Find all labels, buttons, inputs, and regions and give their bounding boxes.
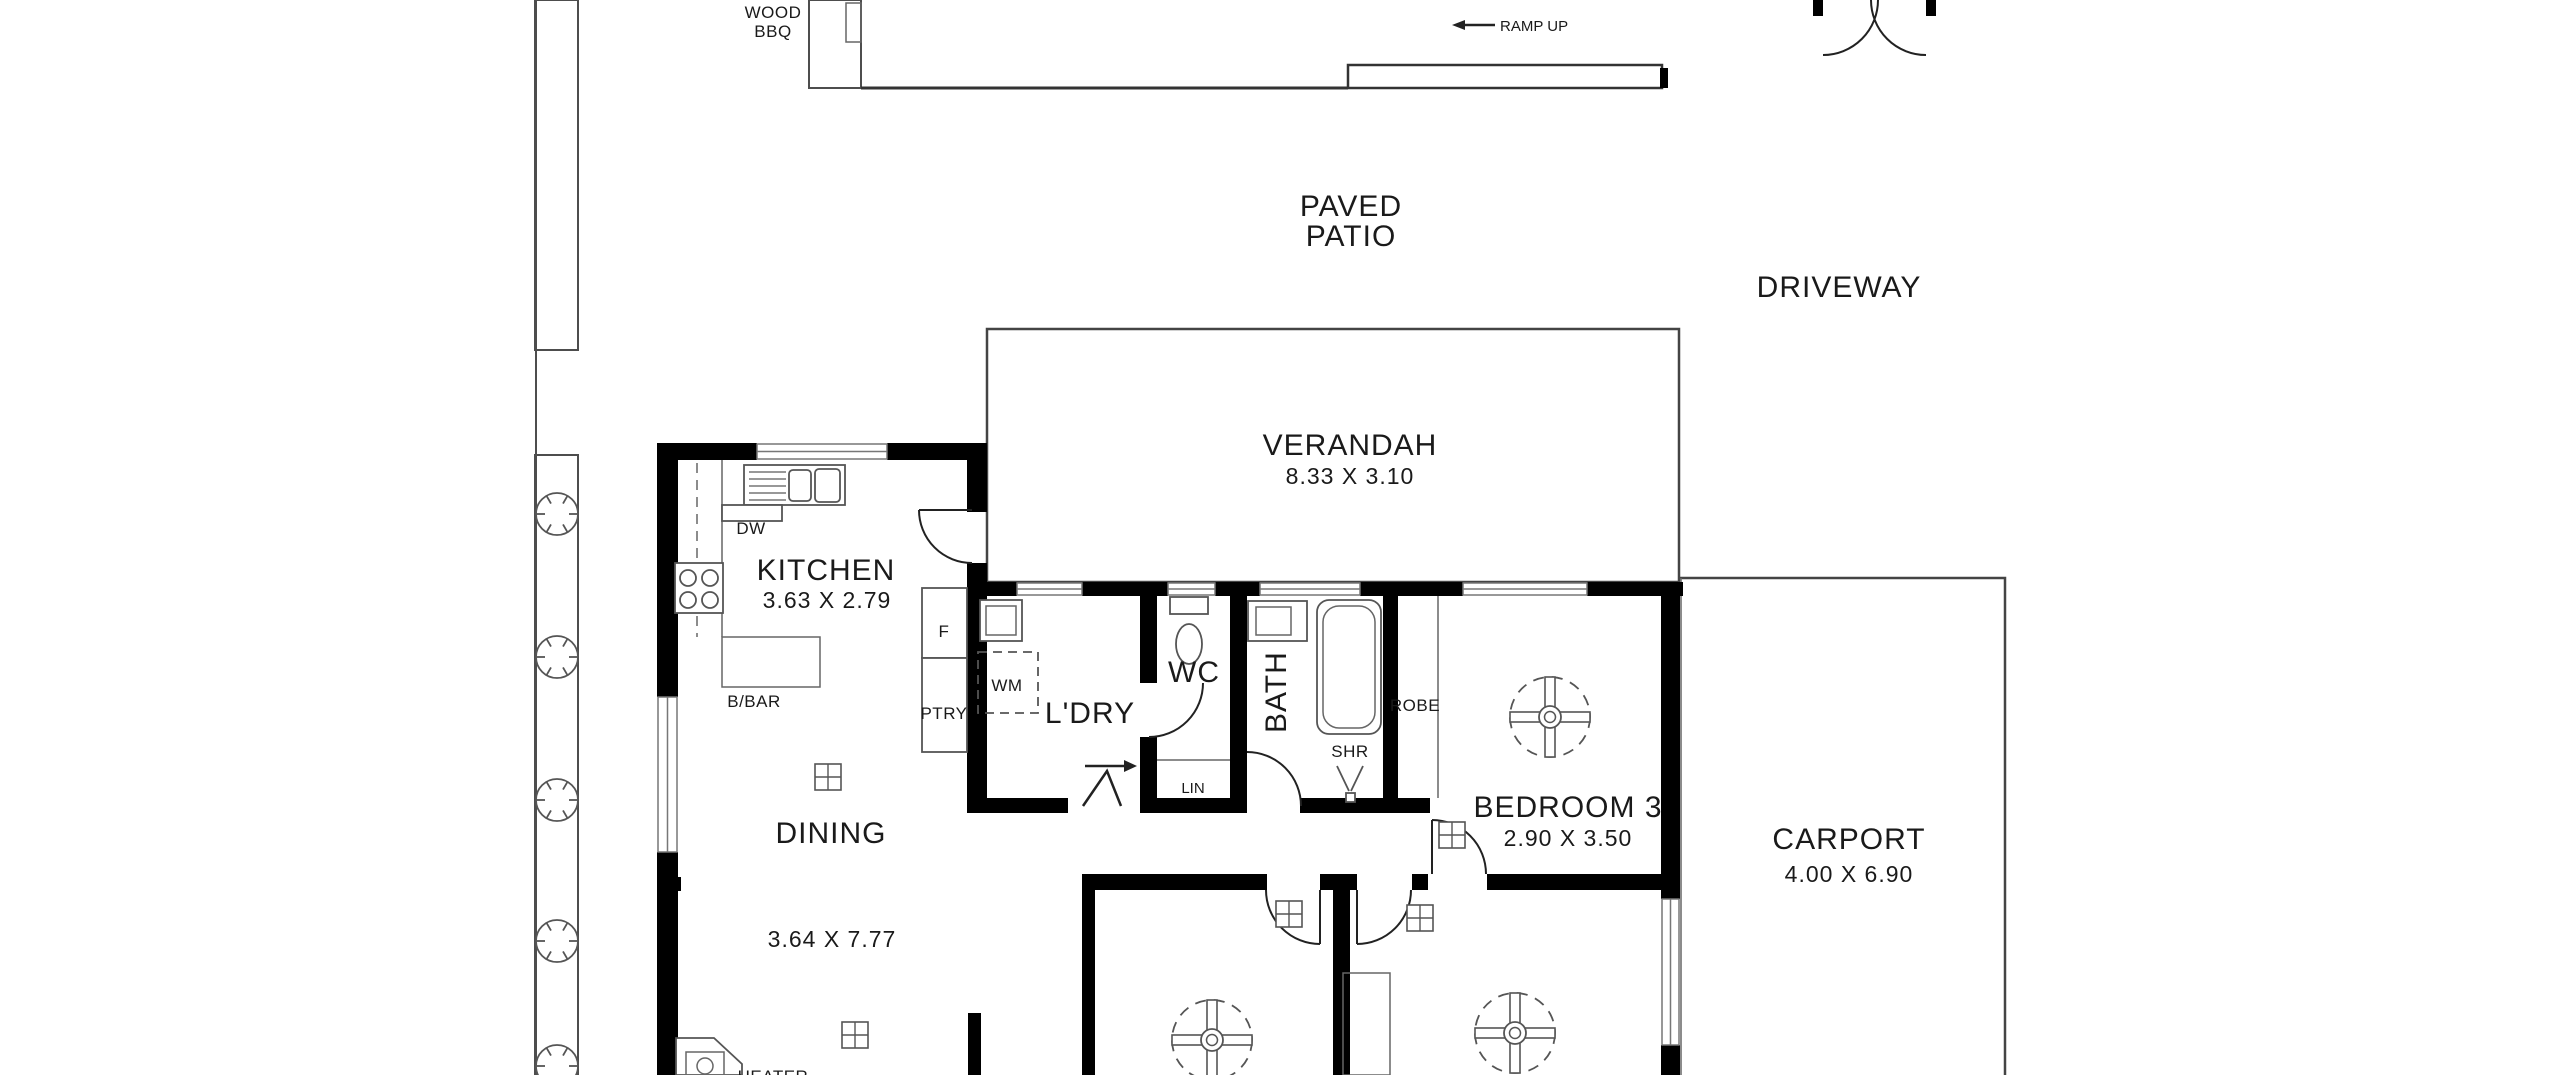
ceiling-fan-icon <box>1172 1000 1252 1075</box>
label-ramp-up: RAMP UP <box>1500 18 1568 35</box>
dims-carport: 4.00 X 6.90 <box>1785 861 1914 887</box>
label-washing-machine: WM <box>991 676 1022 695</box>
walls <box>657 443 1683 1075</box>
ramp-arrow-head-icon <box>1452 20 1465 30</box>
robe-bed2-box <box>1343 973 1390 1075</box>
label-dishwasher: DW <box>736 519 765 538</box>
label-verandah: VERANDAH <box>1263 429 1438 462</box>
dims-kitchen: 3.63 X 2.79 <box>763 587 892 613</box>
label-wc: WC <box>1168 656 1220 689</box>
shrub-icon <box>536 636 578 678</box>
window-wc <box>1168 583 1215 595</box>
ramp-post <box>1660 68 1668 88</box>
label-breakfast-bar: B/BAR <box>727 692 781 711</box>
vent-icon <box>842 1022 868 1048</box>
door-bedroom-right <box>1357 890 1411 944</box>
label-dining: DINING <box>776 817 887 850</box>
label-pantry: PTRY <box>920 704 967 723</box>
shrub-icon <box>536 493 578 535</box>
gate-swing-arc <box>1823 0 1878 55</box>
label-laundry: L'DRY <box>1045 697 1135 730</box>
paved-patio-area <box>809 0 1936 88</box>
site-boundary <box>535 0 578 1075</box>
window-dining-west <box>658 697 677 852</box>
shrub-icon <box>536 779 578 821</box>
floorplan-drawing: WOOD BBQ RAMP UP PAVED PATIO DRIVEWAY VE… <box>0 0 2560 1075</box>
label-heater: HEATER <box>738 1067 809 1075</box>
door-bath <box>1247 752 1301 806</box>
window-bath <box>1260 583 1360 595</box>
kitchen-sink <box>744 465 845 505</box>
label-patio: PATIO <box>1306 220 1397 253</box>
shrub-icon <box>536 1045 578 1075</box>
garden-bed-lower <box>535 455 578 1075</box>
label-paved: PAVED <box>1300 190 1402 223</box>
vent-icon <box>1276 901 1302 927</box>
label-carport: CARPORT <box>1772 823 1925 856</box>
shrub-icon <box>536 920 578 962</box>
vent-icon <box>1407 905 1433 931</box>
window-kitchen <box>757 444 887 459</box>
gate-post <box>1813 0 1823 16</box>
labels: WOOD BBQ RAMP UP PAVED PATIO DRIVEWAY VE… <box>727 3 1925 1075</box>
dims-bedroom3: 2.90 X 3.50 <box>1504 825 1633 851</box>
dims-verandah: 8.33 X 3.10 <box>1286 463 1415 489</box>
floorplan-page: WOOD BBQ RAMP UP PAVED PATIO DRIVEWAY VE… <box>0 0 2560 1075</box>
door-wc <box>1149 683 1203 737</box>
label-kitchen: KITCHEN <box>757 554 896 587</box>
door-kitchen-verandah <box>919 510 972 563</box>
label-linen: LIN <box>1181 780 1204 797</box>
wc-fixtures <box>1170 597 1208 664</box>
label-bath: BATH <box>1260 651 1293 733</box>
label-wood-bbq-2: BBQ <box>754 22 791 41</box>
ceiling-fan-icon <box>1510 677 1590 757</box>
label-wood-bbq-1: WOOD <box>745 3 802 22</box>
ceiling-fan-icon <box>1475 993 1555 1073</box>
window-bedroom3 <box>1463 583 1587 595</box>
heater-box <box>676 1038 742 1075</box>
bathtub <box>1317 600 1381 734</box>
label-fridge: F <box>939 622 950 641</box>
wood-bbq-structure <box>809 0 861 88</box>
toilet-cistern <box>1170 597 1208 614</box>
wood-bbq-inner <box>846 3 861 42</box>
window-laundry <box>1017 583 1082 595</box>
cooktop <box>675 563 723 613</box>
label-bedroom3: BEDROOM 3 <box>1473 791 1662 824</box>
gate-post <box>1926 0 1936 16</box>
vent-icon <box>815 764 841 790</box>
entry-arrow-icon <box>1083 760 1137 806</box>
label-shower: SHR <box>1331 742 1368 761</box>
label-robe-bed3: ROBE <box>1390 696 1440 715</box>
window-east <box>1662 899 1679 1045</box>
ramp <box>1348 65 1662 88</box>
breakfast-bar-counter <box>722 637 820 687</box>
label-driveway: DRIVEWAY <box>1757 271 1922 304</box>
shower-symbol-icon <box>1337 766 1363 802</box>
vent-icon <box>1439 822 1465 848</box>
gate-swing-arc <box>1871 0 1926 55</box>
garden-bed-upper <box>535 0 578 350</box>
dims-dining: 3.64 X 7.77 <box>768 926 897 952</box>
windows <box>658 444 1679 1045</box>
